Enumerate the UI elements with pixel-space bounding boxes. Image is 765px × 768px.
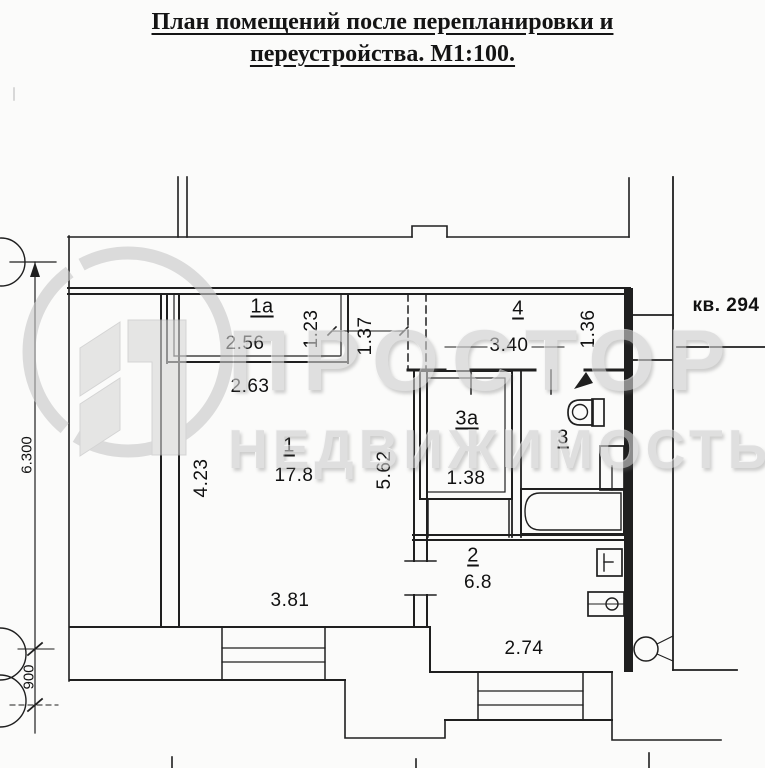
dim-room2-bottom-width: 2.74 (505, 638, 544, 660)
dim-axis-span: 6.300 (19, 436, 36, 474)
riser-pipe (634, 636, 673, 661)
kitchen-bottom-wall (430, 672, 612, 720)
room-3-label: 3 (557, 427, 569, 450)
dashed-partition (408, 294, 426, 370)
room-4-label: 4 (512, 298, 524, 321)
dim-room1-left-depth: 4.23 (191, 459, 213, 498)
neighbor-apartment-label: кв. 294 (693, 295, 760, 317)
toilet (568, 399, 604, 426)
left-wall (161, 294, 179, 627)
bottom-left-wall (70, 627, 430, 680)
room-1a-label: 1а (250, 296, 273, 319)
room-2-area: 6.8 (464, 572, 492, 594)
bathroom-wall (512, 371, 521, 537)
dim-room1a-depth: 1.23 (301, 310, 323, 349)
upper-slab-outline (68, 177, 629, 681)
dim-room4-depth: 1.36 (578, 310, 600, 349)
washbasin (600, 446, 624, 490)
dim-room1-right-depth: 5.62 (374, 451, 396, 490)
room-3a-label: 3а (455, 408, 478, 431)
dim-nook-depth: 1.37 (355, 317, 377, 356)
porch-outline (345, 672, 721, 740)
bottom-tick-marks (172, 753, 649, 768)
dimension-arrow (30, 262, 40, 277)
room-1-area: 17.8 (275, 465, 314, 487)
dim-room1-top-width: 2.63 (231, 376, 270, 398)
room-3a-area: 1.38 (447, 468, 486, 490)
dim-room1-bottom-width: 3.81 (271, 590, 310, 612)
door-swing-arrow (574, 372, 593, 389)
floor-plan-document: План помещений после перепланировки и пе… (0, 0, 765, 768)
axis-dimension-chain (0, 238, 58, 733)
bathtub (521, 489, 624, 534)
kitchen-sink (588, 592, 624, 616)
room-2-label: 2 (467, 545, 479, 568)
right-load-bearing-wall (624, 288, 633, 672)
floor-plan-drawing (0, 0, 765, 768)
right-building-wall (632, 177, 765, 670)
dim-room4-width: 3.40 (490, 335, 529, 357)
stove (597, 549, 622, 576)
room-1-label: 1 (283, 435, 295, 458)
dim-room1a-width: 2.56 (226, 333, 265, 355)
dim-axis-offset: 900 (21, 664, 38, 689)
room-3a-cabin (420, 371, 512, 537)
kitchen-top-wall (413, 535, 624, 540)
